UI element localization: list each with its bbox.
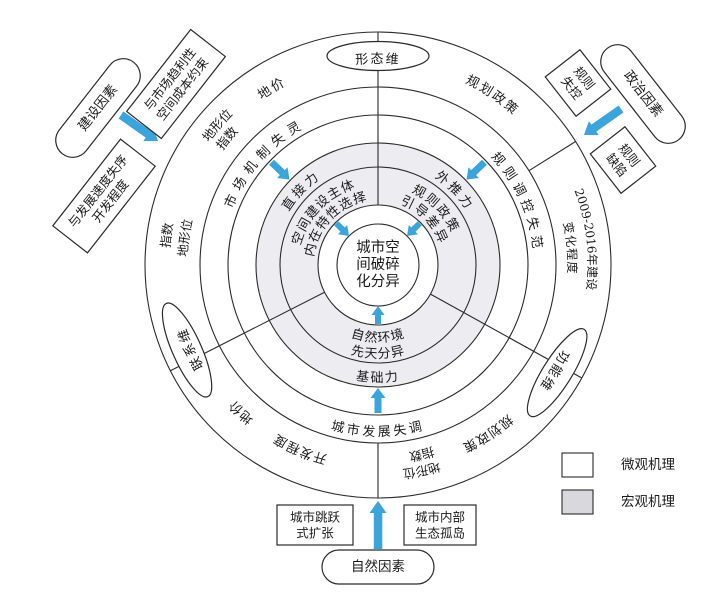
dimension-badge-label: 形态维 bbox=[355, 52, 401, 68]
urban-leapfrog-expansion: 城市跳跃式扩张 bbox=[277, 505, 353, 545]
ring-label: 基础力 bbox=[355, 369, 401, 386]
urban-leapfrog-expansion-label-line: 城市跳跃 bbox=[290, 510, 341, 525]
core-label-line: 间破碎 bbox=[356, 256, 400, 273]
natural-factors-label: 自然因素 bbox=[351, 558, 405, 575]
legend-label: 微观机理 bbox=[621, 457, 675, 473]
ring-label: 基础力 bbox=[355, 369, 401, 386]
urban-inner-eco-islands-label-line: 生态孤岛 bbox=[415, 526, 465, 541]
core-label: 城市空间破碎化分异 bbox=[356, 239, 400, 290]
legend-swatch bbox=[562, 453, 593, 477]
natural-factors-label-line: 自然因素 bbox=[351, 558, 405, 575]
figure-canvas: 空间建设主体内在特性选择直接力市场机制失灵规则政策引导差异外推力规则调控失范自然… bbox=[0, 0, 720, 594]
urban-inner-eco-islands-label-line: 城市内部 bbox=[415, 510, 465, 525]
natural-factors: 自然因素 bbox=[322, 550, 434, 584]
urban-leapfrog-expansion-label: 城市跳跃式扩张 bbox=[290, 510, 341, 541]
legend-label: 宏观机理 bbox=[621, 494, 675, 510]
urban-inner-eco-islands: 城市内部生态孤岛 bbox=[404, 505, 476, 545]
dimension-badge-label: 形态维 bbox=[355, 52, 401, 68]
urban-inner-eco-islands-label: 城市内部生态孤岛 bbox=[415, 510, 465, 541]
urban-leapfrog-expansion-label-line: 式扩张 bbox=[296, 526, 334, 541]
core-label-line: 化分异 bbox=[356, 273, 400, 290]
mechanism-diagram: 空间建设主体内在特性选择直接力市场机制失灵规则政策引导差异外推力规则调控失范自然… bbox=[0, 0, 720, 594]
core-label-line: 城市空 bbox=[356, 239, 400, 256]
legend-swatch bbox=[562, 490, 593, 514]
